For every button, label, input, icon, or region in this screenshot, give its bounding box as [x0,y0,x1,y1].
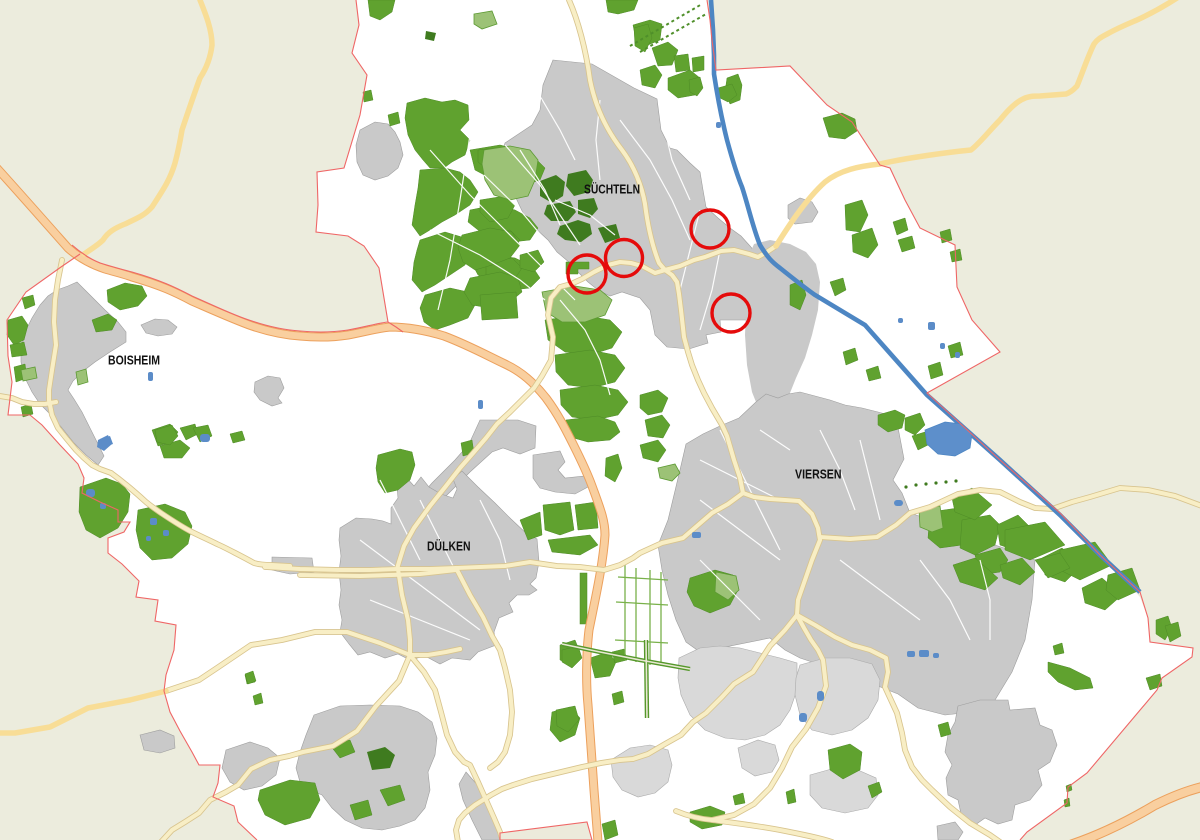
svg-text:DÜLKEN: DÜLKEN [427,539,471,554]
svg-text:BOISHEIM: BOISHEIM [108,354,160,368]
svg-text:VIERSEN: VIERSEN [795,468,842,482]
svg-text:SÜCHTELN: SÜCHTELN [584,182,640,197]
